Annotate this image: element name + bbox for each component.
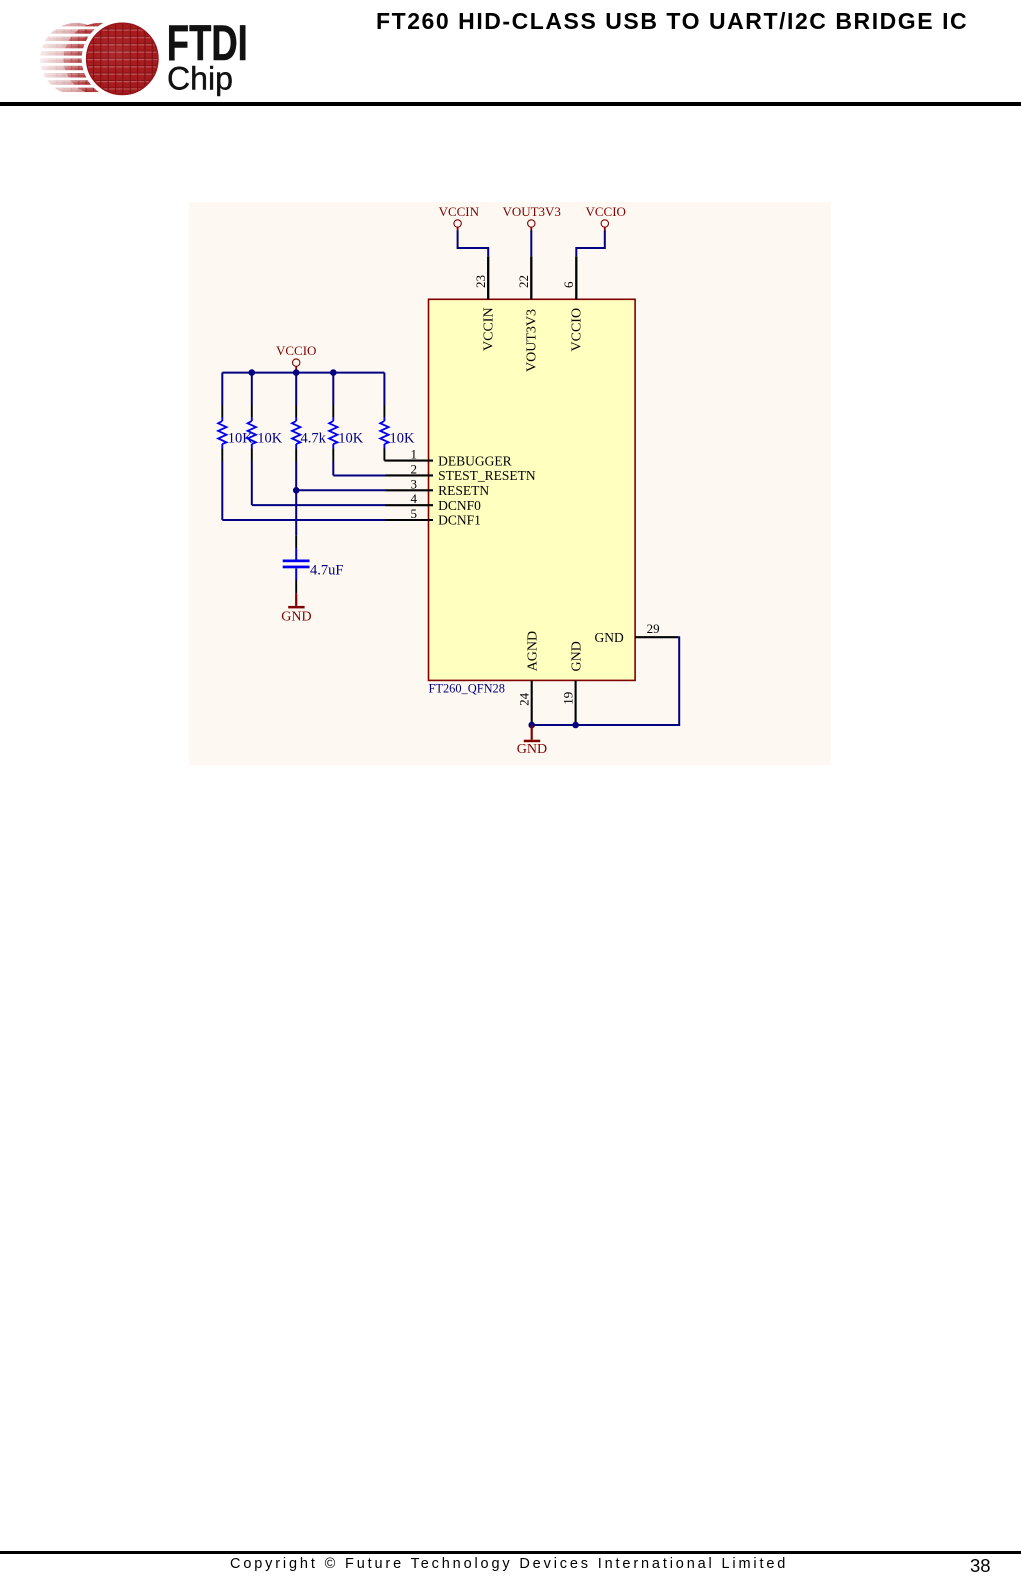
svg-text:GND: GND <box>595 630 624 645</box>
svg-text:4.7k: 4.7k <box>301 431 327 447</box>
svg-text:GND: GND <box>570 641 585 671</box>
svg-text:10K: 10K <box>338 431 364 447</box>
svg-text:29: 29 <box>647 621 660 636</box>
svg-text:DEBUGGER: DEBUGGER <box>438 453 512 468</box>
svg-text:DCNF0: DCNF0 <box>438 498 481 513</box>
svg-text:AGND: AGND <box>526 631 541 671</box>
svg-text:VCCIN: VCCIN <box>481 307 496 351</box>
svg-text:3: 3 <box>411 476 418 491</box>
svg-text:4: 4 <box>411 491 418 506</box>
svg-text:1: 1 <box>411 447 418 462</box>
svg-text:STEST_RESETN: STEST_RESETN <box>438 468 536 483</box>
svg-text:DCNF1: DCNF1 <box>438 513 481 528</box>
svg-text:6: 6 <box>561 281 576 288</box>
svg-text:VOUT3V3: VOUT3V3 <box>524 309 539 372</box>
svg-text:19: 19 <box>560 692 575 705</box>
svg-text:23: 23 <box>473 275 488 288</box>
svg-text:VCCIN: VCCIN <box>439 204 480 219</box>
svg-text:4.7uF: 4.7uF <box>310 563 343 579</box>
svg-text:GND: GND <box>281 610 311 625</box>
svg-text:2: 2 <box>411 462 418 477</box>
svg-text:VCCIO: VCCIO <box>569 308 584 352</box>
svg-text:GND: GND <box>517 742 547 757</box>
svg-text:RESETN: RESETN <box>438 483 489 498</box>
svg-text:10K: 10K <box>390 431 416 447</box>
svg-text:VOUT3V3: VOUT3V3 <box>502 204 561 219</box>
svg-text:24: 24 <box>516 692 531 706</box>
svg-text:VCCIO: VCCIO <box>585 204 625 219</box>
svg-text:5: 5 <box>411 506 418 521</box>
svg-text:VCCIO: VCCIO <box>276 343 316 358</box>
svg-text:10K: 10K <box>257 431 283 447</box>
svg-text:FT260_QFN28: FT260_QFN28 <box>429 682 505 696</box>
svg-text:22: 22 <box>516 275 531 288</box>
